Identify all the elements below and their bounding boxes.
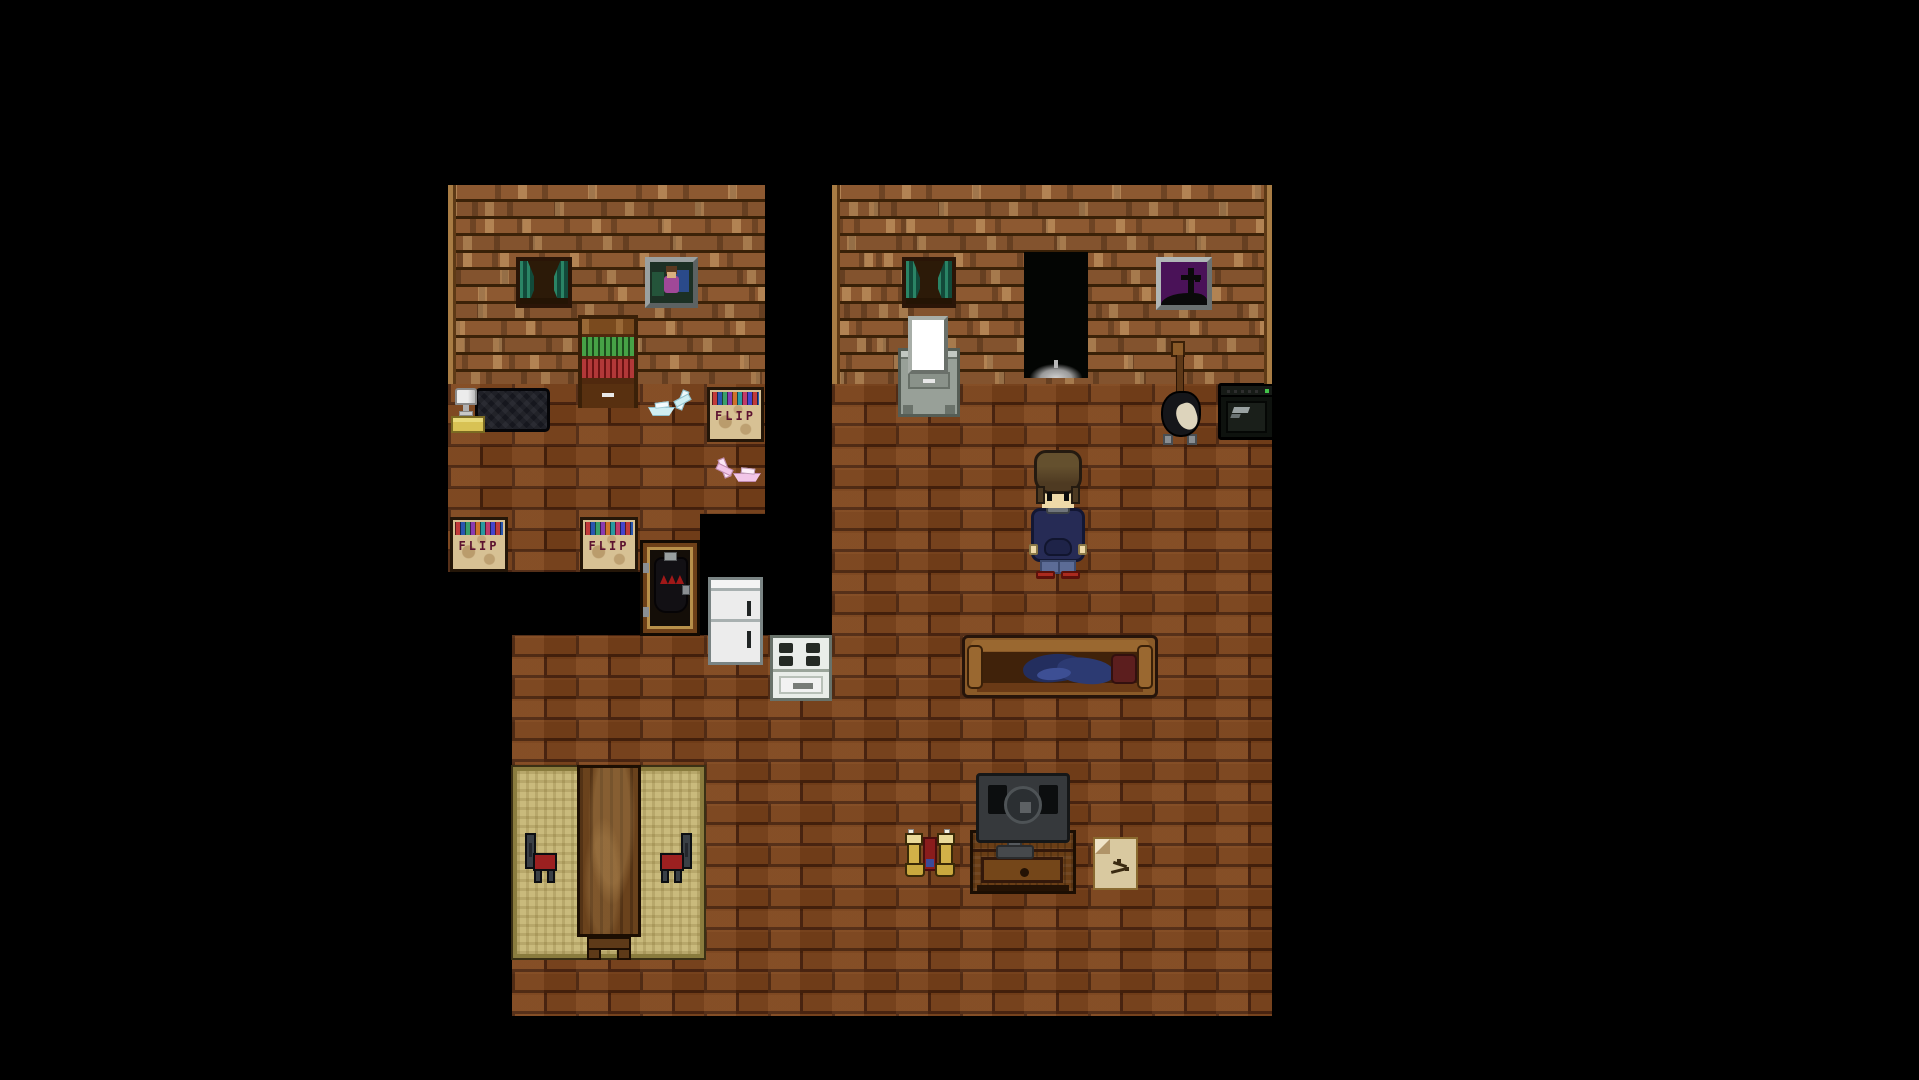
wall-edge-plank xyxy=(832,185,840,384)
couch-front-lip xyxy=(977,683,1143,692)
plank-row xyxy=(832,236,1272,253)
origami-bird-pink xyxy=(715,458,761,490)
player-sideburn xyxy=(1036,486,1045,504)
origami-boat-hull xyxy=(733,473,761,482)
vanity-group[interactable] xyxy=(898,316,960,417)
origami-bird-blue xyxy=(648,388,696,422)
photo-background-green xyxy=(652,272,664,296)
dark-doorway[interactable] xyxy=(1024,252,1088,378)
cabinet-drawer xyxy=(981,857,1063,883)
player-eye xyxy=(1064,492,1069,501)
chair-leg xyxy=(674,869,682,883)
amplifier[interactable] xyxy=(1218,383,1275,440)
bench-leg xyxy=(587,948,601,960)
bedroom-window[interactable] xyxy=(516,257,572,308)
crate-label: FLIP xyxy=(583,539,635,553)
fridge-lower-door xyxy=(711,625,760,662)
couch-backrest xyxy=(971,640,1149,651)
player-hand xyxy=(1029,544,1038,555)
fridge-handle xyxy=(747,601,751,616)
record-crate[interactable]: FLIP xyxy=(707,387,764,442)
amp-knobs xyxy=(1227,390,1230,393)
backrest-slot xyxy=(685,843,688,857)
couch[interactable] xyxy=(962,635,1158,698)
wardrobe[interactable] xyxy=(640,540,700,636)
player-pocket xyxy=(1044,538,1072,556)
window-sill xyxy=(520,298,568,304)
brick-row xyxy=(512,993,1272,1014)
doorway-glow-stem xyxy=(1054,360,1058,368)
brick-row xyxy=(512,1014,1272,1016)
fridge-upper-door xyxy=(711,594,760,622)
window-sill xyxy=(906,298,952,304)
amp-grille xyxy=(1226,401,1267,433)
bookshelf-drawer[interactable] xyxy=(582,378,634,408)
bed-group xyxy=(451,386,551,434)
brick-row xyxy=(512,573,1272,594)
electric-guitar[interactable] xyxy=(1161,341,1203,447)
burner xyxy=(806,656,820,666)
boot-shaft xyxy=(939,843,953,865)
brick-row xyxy=(448,489,765,510)
picture-cross-vertical xyxy=(1188,268,1194,296)
stove[interactable] xyxy=(770,635,832,701)
picture-cross-detail xyxy=(1195,278,1200,282)
wall-edge-plank xyxy=(1264,185,1272,384)
plank-row xyxy=(832,185,1272,202)
fridge-handle xyxy=(747,631,751,648)
table-end-bench xyxy=(587,937,631,960)
photo-figure-face xyxy=(667,272,676,278)
tv-group[interactable] xyxy=(968,773,1078,894)
plank-row xyxy=(448,236,765,253)
oven-door xyxy=(779,676,823,694)
couch-armrest xyxy=(1137,645,1153,689)
lamp-shade[interactable] xyxy=(455,388,477,405)
record-crate[interactable]: FLIP xyxy=(580,517,638,572)
wardrobe-hinge xyxy=(643,563,649,573)
burner xyxy=(779,643,793,653)
brick-row xyxy=(512,678,1272,699)
plank-row xyxy=(448,287,765,304)
dresser-leg xyxy=(945,405,955,414)
boots[interactable] xyxy=(905,833,955,881)
record-crate[interactable]: FLIP xyxy=(450,517,508,572)
family-photo-frame[interactable] xyxy=(645,257,698,308)
brick-row xyxy=(512,615,1272,636)
brick-row xyxy=(512,720,1272,741)
tv-stand-foot xyxy=(996,845,1034,859)
game-scene: FLIP FLIP FLIP xyxy=(0,0,1919,1080)
red-item-blue-patch xyxy=(926,859,934,867)
brick-row xyxy=(512,636,1272,657)
tv-mount-center xyxy=(1020,802,1031,813)
plank-row xyxy=(448,253,765,270)
vanity-mirror xyxy=(908,316,948,374)
amp-grille-highlight xyxy=(1230,414,1240,418)
amp-power-led xyxy=(1265,389,1269,393)
record-spines xyxy=(585,522,633,535)
scribble-dot xyxy=(1117,859,1121,863)
plank-row xyxy=(832,219,1272,236)
grave-picture-frame[interactable] xyxy=(1156,257,1212,310)
amp-control-panel xyxy=(1221,386,1272,397)
boot-foot xyxy=(935,863,955,877)
note-paper[interactable] xyxy=(1093,837,1138,890)
crate-label: FLIP xyxy=(710,409,761,423)
brick-row xyxy=(512,972,1272,993)
player-shoe xyxy=(1061,571,1080,579)
chair-left[interactable] xyxy=(525,833,560,886)
tv-vent xyxy=(1039,785,1058,814)
oven-handle xyxy=(793,683,813,689)
fridge-top xyxy=(711,580,760,591)
cabinet-base xyxy=(977,885,1069,891)
player-eye xyxy=(1047,492,1052,501)
bed-blanket[interactable] xyxy=(475,388,550,432)
record-spines xyxy=(455,522,503,535)
livingroom-window[interactable] xyxy=(902,257,956,308)
brick-row xyxy=(512,699,1272,720)
chair-leg xyxy=(534,869,542,883)
dining-table[interactable] xyxy=(577,765,641,937)
photo-figure-body xyxy=(664,276,679,293)
player-sideburn xyxy=(1071,486,1080,504)
hanger-clip xyxy=(664,552,677,561)
dresser-drawer xyxy=(908,372,950,389)
brick-row xyxy=(512,594,1272,615)
brick-row xyxy=(512,741,1272,762)
boot-foot xyxy=(905,863,925,877)
player-character[interactable] xyxy=(1029,450,1087,579)
drawer-knob xyxy=(1020,868,1029,877)
couch-armrest xyxy=(967,645,983,689)
bookshelf-red-books xyxy=(582,356,634,378)
guitar-stand-foot xyxy=(1187,434,1197,445)
chair-leg xyxy=(661,869,669,883)
tv-mount-circle xyxy=(1004,786,1042,824)
bookshelf-top xyxy=(582,319,634,334)
wardrobe-hinge xyxy=(643,607,649,617)
stove-divider xyxy=(773,669,829,672)
burner xyxy=(806,643,820,653)
crate-label: FLIP xyxy=(453,539,505,553)
plank-row xyxy=(448,219,765,236)
scribble-dot xyxy=(1125,867,1129,871)
bookshelf-green-books xyxy=(582,334,634,356)
drawer-handle xyxy=(923,379,935,383)
brick-row xyxy=(512,657,1272,678)
bench-leg xyxy=(617,948,631,960)
amp-grille-highlight xyxy=(1232,407,1250,413)
burner xyxy=(779,656,793,666)
tv-back-panel xyxy=(976,773,1070,843)
boot-shaft xyxy=(907,843,921,865)
origami-boat-hull xyxy=(648,407,675,416)
couch-pillow xyxy=(1111,654,1137,684)
nightstand[interactable] xyxy=(451,416,485,433)
lamp-base xyxy=(459,411,473,416)
chair-right[interactable] xyxy=(657,833,692,886)
jacket-red-zigzag xyxy=(660,575,684,584)
player-hand xyxy=(1078,544,1087,555)
chair-leg xyxy=(547,869,555,883)
refrigerator[interactable] xyxy=(708,577,763,665)
pants-split xyxy=(1058,562,1060,572)
wall-edge-plank xyxy=(448,185,456,384)
guitar-stand-foot xyxy=(1163,434,1173,445)
record-spines xyxy=(712,392,759,405)
picture-hill xyxy=(1161,293,1207,305)
plank-row xyxy=(832,202,1272,219)
dresser-leg xyxy=(903,405,913,414)
plank-row xyxy=(448,185,765,202)
plank-row xyxy=(448,202,765,219)
backrest-slot xyxy=(529,843,532,857)
player-shoe xyxy=(1036,571,1055,579)
bookshelf[interactable] xyxy=(578,315,638,408)
plank-row xyxy=(448,270,765,287)
drawer-handle xyxy=(602,393,614,397)
wardrobe-handle xyxy=(682,585,690,595)
